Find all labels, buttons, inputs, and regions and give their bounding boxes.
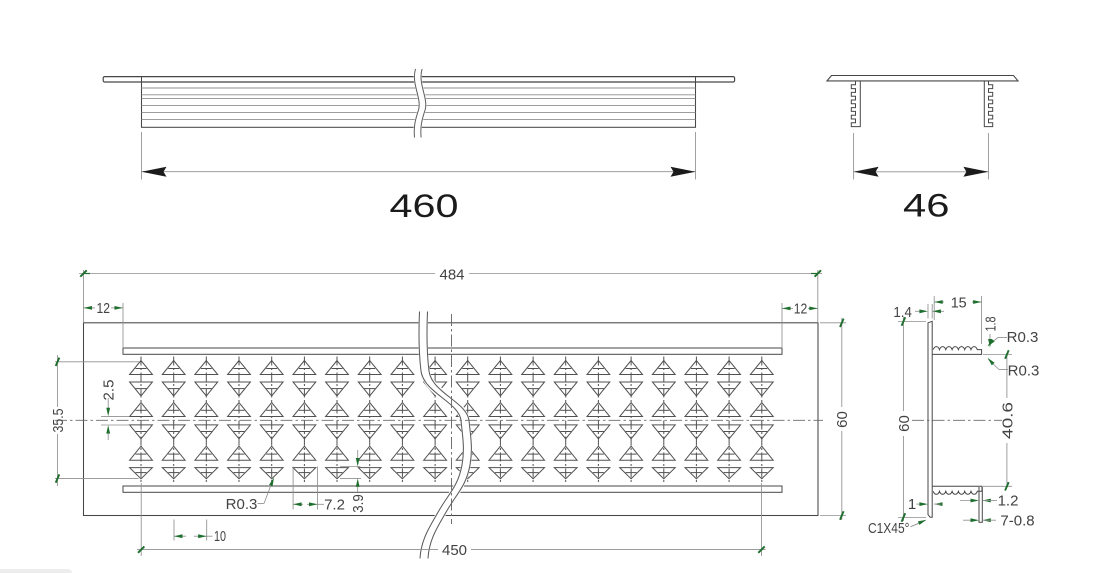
svg-text:35.5: 35.5 [50, 409, 67, 433]
svg-text:12: 12 [794, 301, 808, 318]
svg-text:450: 450 [442, 542, 467, 559]
svg-text:R0.3: R0.3 [1008, 363, 1040, 380]
svg-text:15: 15 [951, 294, 967, 311]
svg-text:60: 60 [834, 411, 851, 428]
svg-text:46: 46 [903, 187, 950, 223]
svg-text:7-0.8: 7-0.8 [1000, 513, 1034, 530]
svg-text:2.5: 2.5 [101, 380, 118, 401]
svg-text:3.9: 3.9 [350, 494, 367, 513]
svg-text:R0.3: R0.3 [226, 496, 258, 513]
svg-text:1.4: 1.4 [893, 304, 912, 321]
svg-text:12: 12 [97, 300, 111, 317]
svg-text:R0.3: R0.3 [1007, 329, 1039, 346]
svg-text:60: 60 [896, 415, 913, 432]
svg-text:C1X45°: C1X45° [868, 520, 910, 537]
svg-text:10: 10 [214, 528, 226, 545]
svg-text:484: 484 [439, 266, 464, 283]
svg-text:7.2: 7.2 [324, 497, 345, 514]
svg-text:1.8: 1.8 [982, 317, 999, 332]
svg-text:1.2: 1.2 [998, 493, 1019, 510]
svg-text:1: 1 [908, 496, 916, 513]
svg-text:460: 460 [390, 188, 459, 224]
svg-text:40.6: 40.6 [999, 402, 1016, 439]
